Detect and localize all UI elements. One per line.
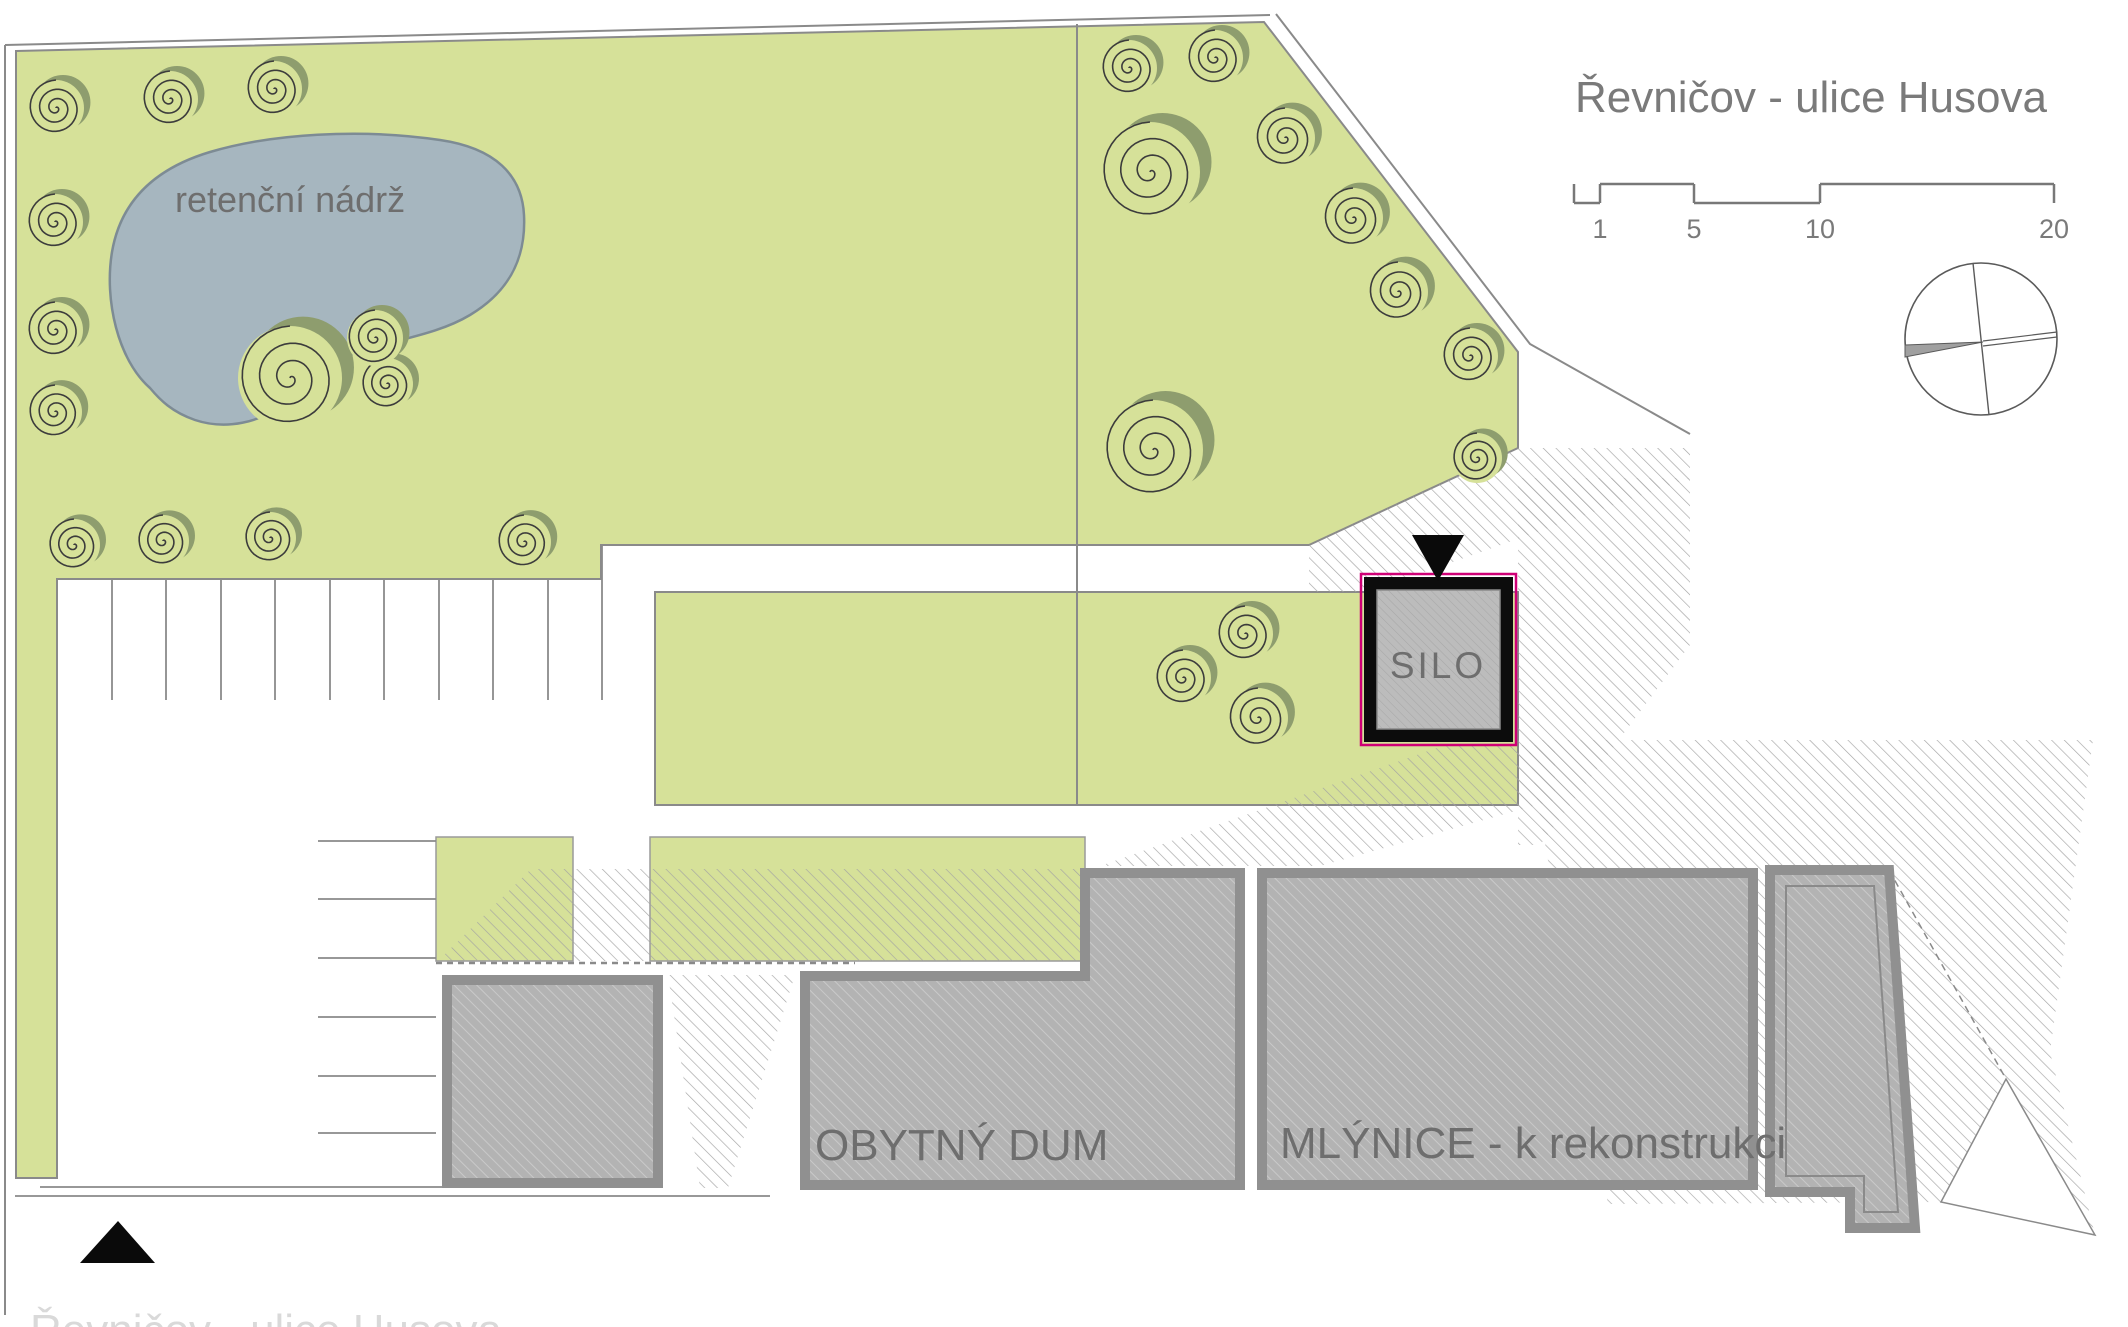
entrance-marker-south-icon (80, 1221, 155, 1263)
residential-house-label: OBYTNÝ DUM (815, 1121, 1108, 1170)
scale-tick-5: 5 (1686, 214, 1701, 244)
outbuilding (447, 980, 658, 1183)
site-plan-drawing: retenční nádrž SILO (0, 0, 2128, 1327)
site-plan-page: retenční nádrž SILO (0, 0, 2128, 1327)
hatch-garden-strip (438, 869, 1085, 961)
scale-bar-labels: 1 5 10 20 (1592, 214, 2069, 244)
plan-title: Řevničov - ulice Husova (1575, 73, 2047, 122)
scale-tick-1: 1 (1592, 214, 1607, 244)
scale-tick-10: 10 (1805, 214, 1835, 244)
mill-label: MLÝNICE - k rekonstrukci (1280, 1119, 1786, 1168)
pond-label: retenční nádrž (175, 179, 405, 220)
silo-building: SILO (1361, 574, 1516, 745)
hatch-passage-wedge (668, 975, 795, 1188)
silo-label: SILO (1390, 645, 1486, 686)
street-name-faint: Řevničov - ulice Husova (30, 1306, 502, 1327)
compass-icon (1905, 263, 2057, 415)
parking-stalls-left (318, 841, 436, 1133)
scale-bar (1574, 184, 2054, 203)
scale-tick-20: 20 (2039, 214, 2069, 244)
side-building (1770, 870, 1915, 1228)
street-edge-lines (15, 1187, 770, 1196)
